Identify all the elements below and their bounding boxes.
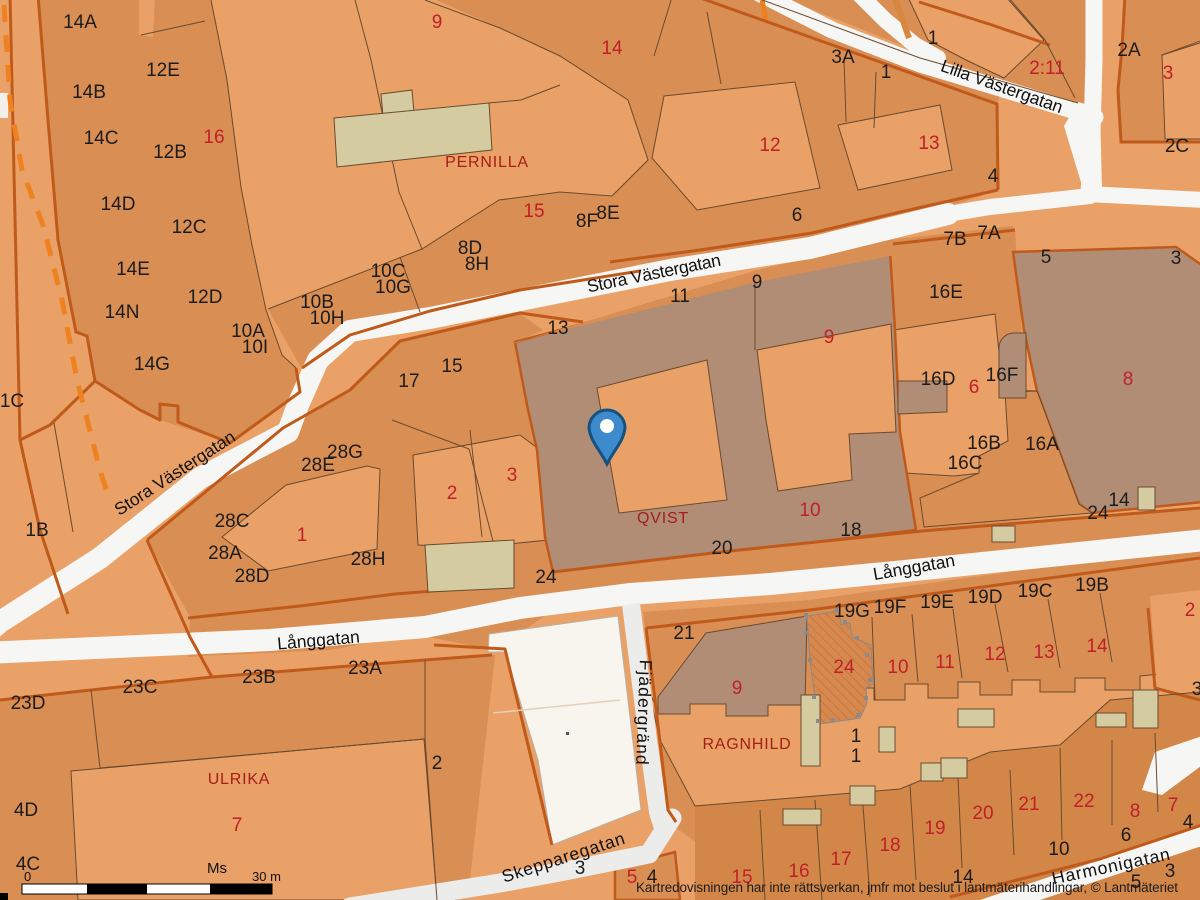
- svg-text:2A: 2A: [1117, 40, 1141, 61]
- svg-text:16C: 16C: [948, 453, 983, 474]
- svg-text:18: 18: [879, 835, 900, 856]
- svg-text:13: 13: [918, 133, 939, 154]
- svg-text:10: 10: [799, 500, 820, 521]
- svg-text:2: 2: [1185, 600, 1196, 621]
- svg-text:8: 8: [1130, 801, 1141, 822]
- svg-text:ULRIKA: ULRIKA: [208, 771, 271, 788]
- svg-text:18: 18: [840, 520, 861, 541]
- svg-text:1B: 1B: [25, 520, 48, 541]
- svg-text:10I: 10I: [242, 337, 268, 358]
- svg-text:9: 9: [824, 327, 835, 348]
- svg-text:16E: 16E: [929, 282, 963, 303]
- svg-text:RAGNHILD: RAGNHILD: [702, 736, 791, 753]
- svg-text:14G: 14G: [134, 354, 170, 375]
- svg-text:19G: 19G: [834, 601, 870, 622]
- svg-text:21: 21: [673, 623, 694, 644]
- svg-text:2:11: 2:11: [1029, 58, 1065, 79]
- svg-text:6: 6: [1121, 825, 1132, 846]
- svg-text:7B: 7B: [943, 229, 966, 250]
- svg-text:0: 0: [24, 869, 31, 884]
- svg-text:23A: 23A: [348, 658, 382, 679]
- svg-text:12: 12: [759, 135, 780, 156]
- svg-text:8: 8: [1123, 369, 1134, 390]
- svg-text:24: 24: [535, 567, 557, 588]
- svg-text:10H: 10H: [310, 308, 345, 329]
- svg-text:28C: 28C: [215, 511, 250, 532]
- svg-text:1C: 1C: [0, 391, 24, 412]
- svg-text:1: 1: [881, 62, 892, 83]
- svg-text:28E: 28E: [301, 455, 335, 476]
- svg-text:16: 16: [203, 127, 224, 148]
- svg-text:19B: 19B: [1075, 575, 1109, 596]
- svg-text:24: 24: [1087, 503, 1109, 524]
- svg-text:10: 10: [1048, 839, 1069, 860]
- svg-text:16: 16: [788, 861, 809, 882]
- svg-text:14: 14: [601, 38, 623, 59]
- svg-text:20: 20: [972, 803, 993, 824]
- svg-text:7: 7: [1168, 795, 1179, 816]
- svg-text:13: 13: [1033, 642, 1054, 663]
- svg-text:14C: 14C: [84, 128, 119, 149]
- svg-text:17: 17: [830, 849, 851, 870]
- svg-text:1: 1: [297, 525, 308, 546]
- svg-text:12B: 12B: [153, 142, 187, 163]
- svg-text:19F: 19F: [874, 597, 907, 618]
- svg-text:17: 17: [398, 371, 419, 392]
- svg-text:9: 9: [732, 678, 743, 699]
- svg-text:3A: 3A: [831, 47, 855, 68]
- svg-text:14E: 14E: [116, 259, 150, 280]
- svg-text:16D: 16D: [921, 369, 956, 390]
- svg-text:9: 9: [432, 12, 443, 33]
- svg-text:30 m: 30 m: [252, 869, 281, 884]
- svg-text:20: 20: [711, 538, 732, 559]
- svg-text:24: 24: [833, 657, 855, 678]
- svg-text:3: 3: [1171, 248, 1182, 269]
- svg-text:2C: 2C: [1165, 136, 1189, 157]
- svg-text:3: 3: [1163, 63, 1174, 84]
- svg-text:15: 15: [523, 201, 544, 222]
- svg-text:1: 1: [851, 726, 862, 747]
- svg-text:4D: 4D: [14, 800, 38, 821]
- svg-text:14: 14: [1108, 490, 1130, 511]
- svg-text:12E: 12E: [146, 60, 180, 81]
- svg-text:8H: 8H: [465, 254, 489, 275]
- svg-text:13: 13: [547, 318, 568, 339]
- svg-text:21: 21: [1018, 794, 1039, 815]
- svg-text:3: 3: [507, 465, 518, 486]
- svg-text:6: 6: [969, 377, 980, 398]
- svg-text:Kartredovisningen har inte rät: Kartredovisningen har inte rättsverkan, …: [636, 880, 1178, 895]
- svg-text:16A: 16A: [1025, 434, 1059, 455]
- svg-text:Fjädergränd: Fjädergränd: [632, 659, 656, 765]
- svg-text:1: 1: [928, 28, 939, 49]
- svg-text:14A: 14A: [63, 12, 97, 33]
- svg-text:9: 9: [752, 272, 763, 293]
- svg-text:16B: 16B: [967, 433, 1001, 454]
- svg-text:14B: 14B: [72, 82, 106, 103]
- svg-text:28D: 28D: [235, 566, 270, 587]
- svg-text:12D: 12D: [188, 287, 223, 308]
- svg-text:6: 6: [792, 205, 803, 226]
- svg-text:23B: 23B: [242, 667, 276, 688]
- svg-text:3: 3: [1165, 861, 1176, 882]
- svg-text:14D: 14D: [101, 194, 136, 215]
- svg-text:14: 14: [1086, 636, 1108, 657]
- svg-text:7: 7: [232, 815, 243, 836]
- svg-text:2: 2: [432, 753, 443, 774]
- svg-text:19: 19: [924, 818, 945, 839]
- svg-text:23C: 23C: [123, 677, 158, 698]
- svg-text:12C: 12C: [172, 217, 207, 238]
- svg-text:2: 2: [447, 483, 458, 504]
- svg-text:3: 3: [575, 858, 586, 879]
- svg-text:19E: 19E: [920, 592, 954, 613]
- svg-text:22: 22: [1073, 791, 1094, 812]
- svg-text:Ms: Ms: [207, 860, 227, 877]
- svg-text:15: 15: [441, 356, 462, 377]
- svg-text:10G: 10G: [375, 277, 411, 298]
- svg-text:1: 1: [851, 746, 862, 767]
- svg-text:PERNILLA: PERNILLA: [445, 154, 529, 171]
- svg-text:23D: 23D: [11, 693, 46, 714]
- svg-text:28H: 28H: [351, 549, 386, 570]
- svg-text:12: 12: [984, 644, 1005, 665]
- svg-text:14N: 14N: [105, 302, 140, 323]
- svg-text:QVIST: QVIST: [637, 510, 689, 527]
- svg-text:19D: 19D: [968, 587, 1003, 608]
- svg-text:11: 11: [935, 652, 955, 673]
- svg-text:28A: 28A: [208, 543, 242, 564]
- svg-text:4: 4: [1183, 812, 1194, 833]
- svg-text:7A: 7A: [977, 223, 1001, 244]
- svg-text:10: 10: [887, 657, 908, 678]
- svg-text:19C: 19C: [1018, 581, 1053, 602]
- svg-text:16F: 16F: [986, 365, 1019, 386]
- svg-text:4: 4: [988, 166, 999, 187]
- svg-text:11: 11: [670, 286, 690, 307]
- svg-text:8E: 8E: [596, 203, 619, 224]
- svg-text:8F: 8F: [576, 211, 598, 232]
- svg-text:3: 3: [1192, 679, 1200, 700]
- svg-text:5: 5: [1041, 247, 1052, 268]
